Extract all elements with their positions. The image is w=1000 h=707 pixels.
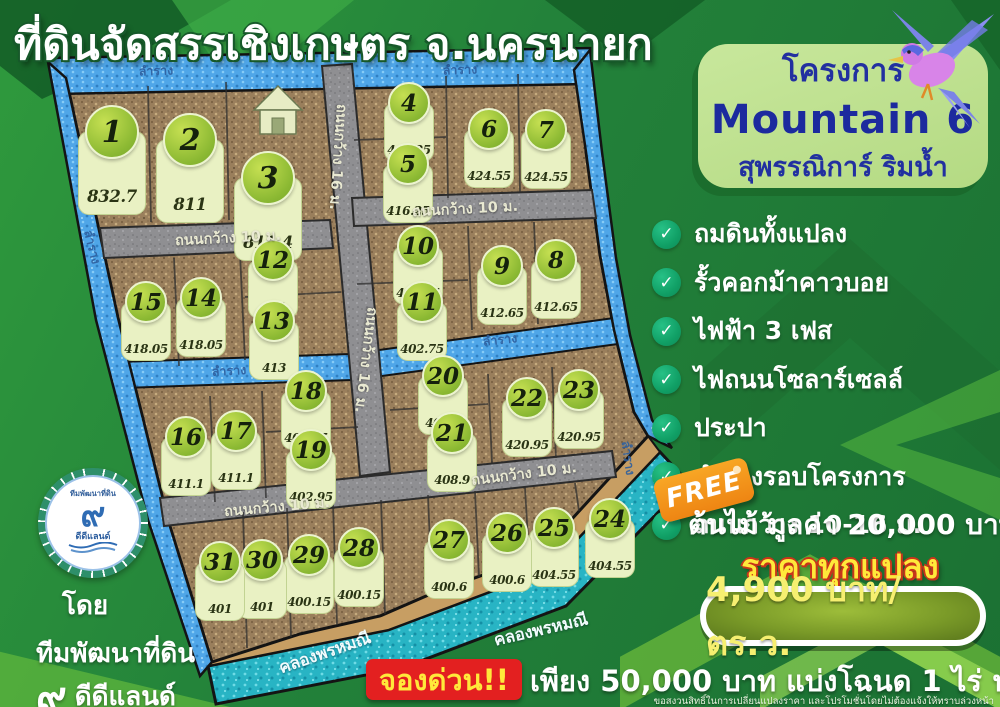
developer-byline: โดย ทีมพัฒนาที่ดิน ๙ ดีดีแลนด์ [36,585,206,707]
feature-text: รั้วคอกม้าคาวบอย [694,263,889,303]
brand-name: ดีดีแลนด์ [75,676,176,707]
checkmark-icon: ✓ [652,220,681,249]
project-subtitle: สุพรรณิการ์ ริมน้ำ [738,145,948,188]
booking-badge-label: จองด่วน!! [379,657,509,703]
feature-text: ไฟถนนโซลาร์เซลล์ [694,360,903,400]
poster: 832.718112811.43416.254416.255424.556424… [0,0,1000,707]
logo-inner: ทีมพัฒนาที่ดิน ๙ ดีดีแลนด์ [45,475,141,571]
price-value: 4,900 บาท/ตร.ว. [706,562,980,670]
bird-illustration [876,0,1000,130]
disclaimer-text: ขอสงวนสิทธิ์ในการเปลี่ยนแปลงราคา และโปรโ… [654,694,994,707]
logo-numeral: ๙ [81,498,106,532]
feature-text: ถมดินทั้งแปลง [694,214,847,254]
price-pill: 4,900 บาท/ตร.ว. [700,586,986,646]
booking-badge: จองด่วน!! [366,659,522,700]
checkmark-icon: ✓ [652,414,681,443]
byline-by: โดย [62,585,206,626]
feature-item: ✓รั้วคอกม้าคาวบอย [652,263,997,303]
logo-waves [67,542,119,556]
feature-item: ✓ไฟฟ้า 3 เฟส [652,311,997,351]
page-title: ที่ดินจัดสรรเชิงเกษตร จ.นครนายก [14,10,714,78]
feature-item: ✓ประปา [652,408,997,448]
feature-text: ไฟฟ้า 3 เฟส [694,311,832,351]
feature-item: ✓ถมดินทั้งแปลง [652,214,997,254]
feature-item: ✓ไฟถนนโซลาร์เซลล์ [652,360,997,400]
logo-brand: ดีดีแลนด์ [75,533,110,542]
developer-logo: ทีมพัฒนาที่ดิน ๙ ดีดีแลนด์ [38,468,148,578]
byline-team: ทีมพัฒนาที่ดิน [36,633,206,674]
checkmark-icon: ✓ [652,317,681,346]
byline-brand: ๙ ดีดีแลนด์ [36,676,206,707]
brand-numeral: ๙ [36,680,67,707]
feature-text: ประปา [694,408,767,448]
checkmark-icon: ✓ [652,268,681,297]
checkmark-icon: ✓ [652,365,681,394]
